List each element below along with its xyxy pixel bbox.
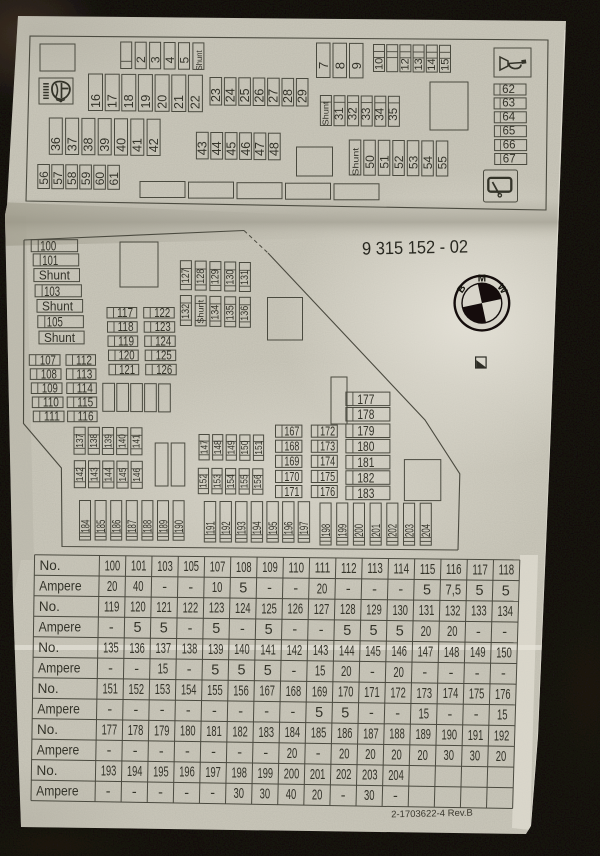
svg-text:183: 183 [357, 486, 374, 501]
svg-text:125: 125 [156, 349, 172, 363]
svg-text:150: 150 [239, 440, 251, 454]
svg-text:100: 100 [105, 558, 121, 574]
svg-text:193: 193 [101, 764, 117, 780]
svg-text:15: 15 [439, 59, 451, 71]
svg-text:137: 137 [156, 641, 172, 657]
svg-text:202: 202 [386, 524, 400, 537]
svg-text:171: 171 [364, 685, 380, 701]
svg-text:7,5: 7,5 [446, 583, 462, 599]
svg-text:-: - [162, 580, 167, 596]
svg-text:20: 20 [155, 95, 169, 109]
svg-text:-: - [346, 582, 351, 598]
svg-text:139: 139 [102, 434, 114, 448]
svg-text:132: 132 [180, 304, 192, 319]
svg-text:63: 63 [502, 98, 515, 110]
svg-text:153: 153 [155, 682, 171, 698]
svg-text:27: 27 [267, 89, 281, 103]
svg-text:143: 143 [88, 467, 100, 481]
svg-text:Ampere: Ampere [37, 742, 80, 757]
svg-text:183: 183 [259, 725, 275, 741]
svg-text:196: 196 [179, 765, 195, 781]
svg-text:175: 175 [320, 470, 335, 484]
svg-text:110: 110 [43, 396, 59, 410]
svg-text:-: - [263, 745, 268, 761]
svg-text:178: 178 [128, 723, 144, 739]
svg-text:-: - [370, 664, 375, 680]
svg-text:116: 116 [446, 562, 462, 578]
svg-text:-: - [341, 788, 346, 804]
svg-text:47: 47 [253, 142, 267, 156]
svg-text:185: 185 [94, 519, 108, 532]
svg-text:137: 137 [74, 434, 86, 448]
svg-text:120: 120 [130, 600, 146, 616]
svg-text:-: - [106, 784, 111, 800]
svg-text:189: 189 [415, 727, 431, 743]
svg-text:156: 156 [233, 683, 249, 699]
svg-text:190: 190 [442, 728, 458, 744]
svg-text:-: - [369, 706, 374, 722]
svg-text:-: - [319, 623, 324, 639]
svg-text:191: 191 [468, 728, 484, 744]
svg-text:108: 108 [236, 560, 252, 576]
svg-text:-: - [158, 785, 163, 801]
svg-text:Shunt: Shunt [194, 50, 204, 71]
svg-text:No.: No. [39, 599, 60, 614]
svg-text:15: 15 [497, 708, 508, 724]
svg-text:111: 111 [315, 561, 331, 577]
svg-text:-: - [134, 661, 139, 677]
svg-text:20: 20 [447, 624, 458, 640]
svg-text:-: - [316, 746, 321, 762]
svg-text:113: 113 [367, 561, 383, 577]
svg-text:-: - [187, 662, 192, 678]
svg-text:176: 176 [320, 485, 335, 499]
svg-text:46: 46 [239, 142, 253, 156]
svg-text:20: 20 [393, 665, 404, 681]
svg-text:138: 138 [88, 434, 100, 448]
svg-text:177: 177 [357, 392, 374, 407]
svg-text:204: 204 [388, 768, 404, 784]
svg-text:32: 32 [347, 107, 359, 120]
svg-text:109: 109 [262, 560, 278, 576]
svg-text:147: 147 [418, 644, 434, 660]
svg-text:57: 57 [51, 171, 65, 185]
svg-text:179: 179 [154, 723, 170, 739]
svg-text:121: 121 [119, 363, 135, 377]
svg-text:121: 121 [156, 600, 172, 616]
svg-text:103: 103 [157, 559, 173, 575]
svg-text:200: 200 [284, 766, 300, 782]
svg-text:2-1703622-4 Rev.B: 2-1703622-4 Rev.B [391, 808, 473, 821]
svg-text:30: 30 [444, 748, 455, 764]
svg-text:-: - [449, 665, 454, 681]
svg-text:195: 195 [266, 521, 280, 534]
svg-text:117: 117 [117, 306, 133, 320]
svg-text:112: 112 [76, 353, 92, 367]
svg-text:167: 167 [259, 684, 275, 700]
svg-text:128: 128 [340, 602, 356, 618]
svg-text:110: 110 [289, 560, 305, 576]
svg-text:-: - [395, 706, 400, 722]
svg-text:Shunt: Shunt [350, 147, 360, 176]
svg-text:24: 24 [224, 88, 238, 102]
svg-text:-: - [188, 580, 193, 596]
svg-text:20: 20 [317, 581, 328, 597]
svg-text:138: 138 [182, 641, 198, 657]
svg-text:-: - [109, 620, 114, 636]
svg-text:147: 147 [198, 440, 210, 454]
svg-text:-: - [159, 744, 164, 760]
svg-text:170: 170 [284, 470, 299, 484]
svg-text:136: 136 [239, 306, 251, 321]
svg-text:124: 124 [155, 334, 171, 348]
svg-text:129: 129 [366, 603, 382, 619]
svg-text:5: 5 [177, 57, 191, 64]
svg-text:-: - [501, 666, 506, 682]
svg-text:-: - [238, 704, 243, 720]
svg-text:127: 127 [180, 268, 192, 283]
svg-text:-: - [476, 624, 481, 640]
svg-text:5: 5 [160, 621, 168, 637]
svg-text:M: M [478, 273, 486, 284]
svg-text:139: 139 [208, 642, 224, 658]
svg-text:58: 58 [65, 171, 79, 185]
svg-text:196: 196 [282, 521, 296, 534]
svg-text:198: 198 [319, 524, 333, 537]
svg-text:40: 40 [133, 579, 144, 595]
svg-text:5: 5 [133, 620, 141, 636]
svg-text:188: 188 [389, 727, 405, 743]
svg-text:109: 109 [42, 382, 58, 396]
svg-text:119: 119 [104, 599, 120, 615]
svg-text:-: - [372, 582, 377, 598]
svg-text:-: - [237, 745, 242, 761]
svg-text:172: 172 [390, 685, 406, 701]
svg-text:26: 26 [252, 89, 266, 103]
svg-text:-: - [291, 705, 296, 721]
svg-text:Ampere: Ampere [37, 701, 80, 716]
svg-text:197: 197 [297, 521, 311, 534]
svg-text:8: 8 [333, 62, 348, 69]
svg-text:199: 199 [336, 524, 350, 537]
svg-text:141: 141 [260, 642, 276, 658]
svg-text:203: 203 [402, 524, 416, 537]
svg-text:115: 115 [77, 396, 93, 410]
svg-text:12: 12 [400, 58, 412, 70]
svg-text:Shunt: Shunt [42, 299, 73, 313]
svg-text:-: - [475, 666, 480, 682]
svg-text:190: 190 [172, 520, 186, 533]
svg-text:5: 5 [315, 705, 323, 721]
svg-text:184: 184 [78, 519, 92, 532]
svg-text:42: 42 [147, 138, 161, 152]
svg-text:Shunt: Shunt [197, 299, 206, 324]
svg-text:186: 186 [110, 519, 124, 532]
svg-text:10: 10 [212, 580, 223, 596]
svg-text:148: 148 [444, 645, 460, 661]
svg-text:180: 180 [180, 724, 196, 740]
svg-text:153: 153 [211, 474, 223, 488]
svg-text:130: 130 [392, 603, 408, 619]
svg-text:149: 149 [226, 440, 238, 454]
svg-text:Shunt: Shunt [44, 331, 75, 345]
svg-text:66: 66 [503, 139, 516, 151]
svg-text:101: 101 [42, 253, 58, 268]
svg-text:-: - [267, 581, 272, 597]
svg-text:173: 173 [320, 440, 335, 454]
svg-text:-: - [448, 707, 453, 723]
svg-text:Ampere: Ampere [38, 660, 81, 675]
svg-text:181: 181 [357, 455, 374, 470]
svg-text:127: 127 [314, 602, 330, 618]
svg-text:60: 60 [93, 172, 107, 186]
svg-text:No.: No. [40, 558, 61, 573]
svg-text:5: 5 [211, 662, 219, 678]
svg-text:-: - [422, 665, 427, 681]
svg-text:20: 20 [341, 664, 352, 680]
svg-text:Ampere: Ampere [36, 783, 79, 798]
svg-text:124: 124 [235, 601, 251, 617]
svg-text:117: 117 [472, 562, 488, 578]
svg-text:5: 5 [423, 582, 431, 598]
svg-text:9: 9 [349, 62, 364, 69]
svg-text:192: 192 [494, 728, 510, 744]
svg-text:145: 145 [365, 644, 381, 660]
svg-text:30: 30 [260, 787, 271, 803]
svg-text:17: 17 [106, 94, 120, 108]
svg-text:201: 201 [310, 767, 326, 783]
svg-text:5: 5 [396, 623, 404, 639]
svg-text:5: 5 [343, 623, 351, 639]
svg-text:No.: No. [37, 722, 58, 737]
svg-text:193: 193 [235, 521, 249, 534]
svg-text:176: 176 [495, 687, 511, 703]
svg-text:182: 182 [232, 724, 248, 740]
svg-text:125: 125 [261, 601, 277, 617]
svg-text:5: 5 [212, 621, 220, 637]
svg-text:133: 133 [471, 604, 487, 620]
svg-text:143: 143 [313, 643, 329, 659]
svg-text:31: 31 [334, 107, 346, 120]
svg-text:10: 10 [373, 58, 385, 70]
svg-text:172: 172 [320, 425, 335, 439]
svg-text:55: 55 [435, 156, 449, 170]
svg-text:5: 5 [341, 705, 349, 721]
svg-text:171: 171 [284, 485, 299, 499]
svg-text:3: 3 [148, 56, 162, 63]
svg-text:20: 20 [417, 748, 428, 764]
svg-text:5: 5 [239, 580, 247, 596]
svg-text:4: 4 [163, 56, 177, 63]
svg-text:36: 36 [49, 137, 63, 151]
svg-text:131: 131 [239, 270, 251, 285]
svg-text:37: 37 [65, 137, 79, 151]
svg-text:184: 184 [285, 725, 301, 741]
svg-text:20: 20 [365, 747, 376, 763]
svg-text:182: 182 [357, 471, 374, 486]
svg-text:123: 123 [209, 601, 225, 617]
svg-text:132: 132 [445, 603, 461, 619]
svg-text:148: 148 [212, 440, 224, 454]
svg-text:170: 170 [338, 685, 354, 701]
svg-text:20: 20 [496, 749, 507, 765]
svg-text:48: 48 [268, 142, 282, 156]
svg-text:186: 186 [337, 726, 353, 742]
svg-text:15: 15 [418, 706, 429, 722]
svg-text:16: 16 [89, 94, 103, 108]
svg-text:191: 191 [203, 521, 217, 534]
svg-text:-: - [184, 785, 189, 801]
svg-text:41: 41 [131, 138, 145, 152]
svg-text:34: 34 [375, 107, 387, 120]
svg-text:-: - [292, 663, 297, 679]
svg-text:40: 40 [286, 787, 297, 803]
svg-text:13: 13 [413, 58, 425, 70]
svg-text:199: 199 [258, 766, 274, 782]
svg-text:-: - [186, 703, 191, 719]
svg-text:187: 187 [125, 520, 139, 533]
svg-text:20: 20 [421, 624, 432, 640]
svg-text:181: 181 [206, 724, 222, 740]
svg-text:50: 50 [363, 155, 377, 169]
svg-text:119: 119 [118, 334, 134, 348]
svg-text:108: 108 [41, 367, 57, 381]
svg-text:177: 177 [102, 723, 118, 739]
svg-text:151: 151 [102, 682, 118, 698]
svg-text:187: 187 [363, 726, 379, 742]
svg-text:140: 140 [117, 434, 129, 448]
svg-text:201: 201 [369, 524, 383, 537]
svg-text:154: 154 [181, 683, 197, 699]
svg-text:33: 33 [361, 108, 373, 121]
svg-text:-: - [211, 745, 216, 761]
svg-text:169: 169 [312, 684, 328, 700]
svg-text:126: 126 [288, 602, 304, 618]
svg-text:20: 20 [107, 579, 118, 595]
svg-text:67: 67 [503, 153, 516, 165]
svg-text:122: 122 [183, 600, 199, 616]
svg-text:5: 5 [264, 663, 272, 679]
svg-text:167: 167 [284, 425, 299, 439]
svg-text:-: - [292, 622, 297, 638]
svg-text:168: 168 [286, 684, 302, 700]
svg-text:-: - [474, 707, 479, 723]
svg-text:-: - [107, 743, 112, 759]
svg-text:204: 204 [419, 524, 433, 537]
svg-text:-: - [133, 743, 138, 759]
svg-text:5: 5 [475, 583, 483, 599]
svg-text:65: 65 [503, 126, 516, 138]
svg-text:195: 195 [153, 764, 169, 780]
svg-text:105: 105 [183, 559, 199, 575]
svg-text:151: 151 [253, 441, 265, 455]
svg-text:-: - [188, 621, 193, 637]
svg-text:200: 200 [352, 524, 366, 537]
svg-text:5: 5 [502, 583, 510, 599]
svg-text:111: 111 [44, 410, 60, 424]
svg-text:59: 59 [79, 171, 93, 185]
svg-text:189: 189 [156, 520, 170, 533]
svg-text:30: 30 [470, 749, 481, 765]
svg-text:146: 146 [391, 644, 407, 660]
svg-text:118: 118 [118, 320, 134, 334]
svg-text:53: 53 [406, 155, 420, 169]
svg-text:194: 194 [127, 764, 143, 780]
svg-text:7: 7 [316, 62, 331, 69]
svg-text:-: - [134, 702, 139, 718]
svg-text:56: 56 [37, 171, 51, 185]
svg-text:144: 144 [339, 643, 355, 659]
svg-text:175: 175 [469, 687, 485, 703]
svg-text:-: - [264, 704, 269, 720]
svg-text:188: 188 [141, 520, 155, 533]
svg-text:105: 105 [47, 315, 63, 330]
svg-text:179: 179 [357, 424, 374, 439]
svg-text:107: 107 [40, 353, 56, 367]
svg-text:20: 20 [287, 746, 298, 762]
svg-text:38: 38 [82, 138, 96, 152]
svg-text:180: 180 [357, 439, 374, 454]
svg-text:194: 194 [250, 521, 264, 534]
svg-text:113: 113 [76, 367, 92, 381]
svg-text:112: 112 [341, 561, 357, 577]
svg-text:-: - [210, 786, 215, 802]
svg-text:-: - [185, 744, 190, 760]
svg-text:22: 22 [189, 95, 203, 109]
svg-text:-: - [160, 703, 165, 719]
svg-text:20: 20 [339, 747, 350, 763]
svg-text:9 315 152 - 02: 9 315 152 - 02 [362, 236, 468, 258]
svg-text:101: 101 [131, 559, 147, 575]
svg-text:-: - [393, 789, 398, 805]
svg-text:122: 122 [154, 306, 170, 320]
svg-text:202: 202 [336, 767, 352, 783]
svg-text:14: 14 [426, 58, 438, 70]
svg-text:154: 154 [225, 474, 237, 488]
svg-text:5: 5 [369, 623, 377, 639]
svg-text:51: 51 [377, 155, 391, 169]
svg-text:136: 136 [129, 641, 145, 657]
svg-text:192: 192 [219, 521, 233, 534]
svg-text:No.: No. [38, 640, 59, 655]
svg-text:174: 174 [320, 455, 335, 469]
svg-text:134: 134 [210, 305, 222, 320]
svg-text:155: 155 [239, 474, 251, 488]
svg-text:173: 173 [417, 686, 433, 702]
svg-text:156: 156 [252, 474, 264, 488]
svg-text:114: 114 [394, 562, 410, 578]
svg-text:44: 44 [210, 141, 224, 155]
svg-text:131: 131 [419, 603, 435, 619]
svg-text:198: 198 [231, 766, 247, 782]
svg-text:135: 135 [225, 305, 237, 320]
svg-text:39: 39 [98, 138, 112, 152]
svg-text:15: 15 [158, 662, 169, 678]
svg-text:18: 18 [122, 94, 136, 108]
svg-text:23: 23 [209, 88, 223, 102]
svg-text:Shunt: Shunt [39, 269, 70, 283]
svg-text:61: 61 [107, 172, 121, 186]
svg-text:-: - [398, 582, 403, 598]
svg-text:128: 128 [195, 269, 207, 284]
svg-text:118: 118 [499, 563, 515, 579]
svg-text:Shunt: Shunt [322, 101, 331, 126]
svg-text:140: 140 [234, 642, 250, 658]
svg-text:20: 20 [391, 747, 402, 763]
svg-text:145: 145 [117, 467, 129, 481]
svg-text:-: - [108, 661, 113, 677]
svg-text:149: 149 [470, 645, 486, 661]
